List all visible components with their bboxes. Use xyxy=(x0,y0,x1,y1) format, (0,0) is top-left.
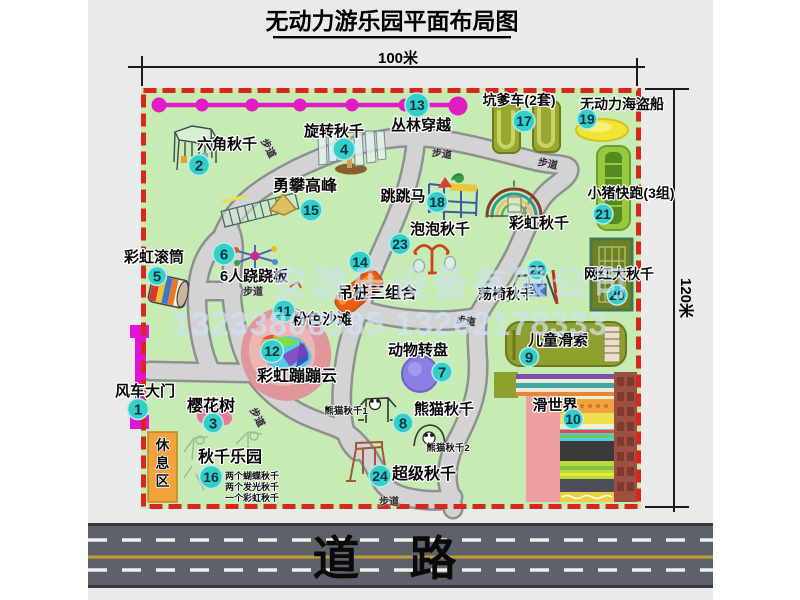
svg-text:超级秋千: 超级秋千 xyxy=(391,464,456,483)
svg-text:风车大门: 风车大门 xyxy=(115,382,175,400)
svg-text:无动力游乐园平面布局图: 无动力游乐园平面布局图 xyxy=(266,8,519,34)
svg-text:步道: 步道 xyxy=(379,495,399,508)
svg-text:23: 23 xyxy=(392,236,408,252)
svg-text:21: 21 xyxy=(595,206,611,222)
svg-text:18: 18 xyxy=(429,194,445,210)
svg-text:一个彩虹秋千: 一个彩虹秋千 xyxy=(225,492,279,503)
svg-text:9: 9 xyxy=(525,350,533,367)
svg-text:16: 16 xyxy=(203,469,219,485)
svg-text:熊猫秋千1: 熊猫秋千1 xyxy=(324,405,368,417)
svg-text:19: 19 xyxy=(579,111,595,127)
svg-text:2: 2 xyxy=(195,158,203,175)
svg-text:12: 12 xyxy=(264,343,280,359)
svg-text:15: 15 xyxy=(303,202,319,218)
svg-text:彩虹滚筒: 彩虹滚筒 xyxy=(123,248,184,266)
svg-text:路: 路 xyxy=(410,532,458,585)
svg-text:旋转秋千: 旋转秋千 xyxy=(303,122,364,140)
svg-text:17: 17 xyxy=(516,113,532,129)
svg-text:24: 24 xyxy=(372,468,388,484)
svg-text:泡泡秋千: 泡泡秋千 xyxy=(410,220,470,238)
svg-text:熊猫秋千: 熊猫秋千 xyxy=(414,400,474,418)
svg-text:息: 息 xyxy=(156,455,170,471)
svg-text:熊猫秋千2: 熊猫秋千2 xyxy=(426,442,469,454)
svg-text:两个发光秋千: 两个发光秋千 xyxy=(225,481,279,492)
svg-text:两个蝴蝶秋千: 两个蝴蝶秋千 xyxy=(225,470,279,481)
svg-text:坑爹车(2套): 坑爹车(2套) xyxy=(482,92,555,108)
svg-text:彩虹蹦蹦云: 彩虹蹦蹦云 xyxy=(256,366,337,385)
svg-text:5: 5 xyxy=(153,269,161,286)
svg-text:1: 1 xyxy=(134,402,142,419)
svg-text:3: 3 xyxy=(209,416,217,433)
svg-text:六角秋千: 六角秋千 xyxy=(197,135,257,153)
svg-text:7: 7 xyxy=(438,365,446,382)
svg-text:樱花树: 樱花树 xyxy=(187,396,235,415)
svg-text:13233808535 13262178333: 13233808535 13262178333 xyxy=(172,305,608,342)
svg-text:小猪快跑(3组): 小猪快跑(3组) xyxy=(587,185,674,201)
svg-text:8: 8 xyxy=(399,416,407,433)
svg-text:秋千乐园: 秋千乐园 xyxy=(198,447,262,466)
svg-text:丛林穿越: 丛林穿越 xyxy=(391,116,452,134)
svg-text:120米: 120米 xyxy=(677,278,695,319)
svg-text:勇攀高峰: 勇攀高峰 xyxy=(273,176,338,195)
svg-text:道: 道 xyxy=(313,532,360,585)
svg-text:13: 13 xyxy=(409,97,425,113)
svg-text:区: 区 xyxy=(156,473,170,489)
svg-text:6: 6 xyxy=(220,247,228,264)
svg-text:跳跳马: 跳跳马 xyxy=(380,187,425,205)
svg-text:4: 4 xyxy=(340,142,349,159)
svg-text:安游乐设备有限公司: 安游乐设备有限公司 xyxy=(272,265,632,304)
svg-text:10: 10 xyxy=(565,411,581,427)
svg-text:彩虹秋千: 彩虹秋千 xyxy=(508,214,569,232)
svg-text:步道: 步道 xyxy=(243,285,263,298)
svg-text:100米: 100米 xyxy=(378,49,419,67)
svg-text:动物转盘: 动物转盘 xyxy=(388,341,448,359)
svg-text:休: 休 xyxy=(155,437,171,453)
